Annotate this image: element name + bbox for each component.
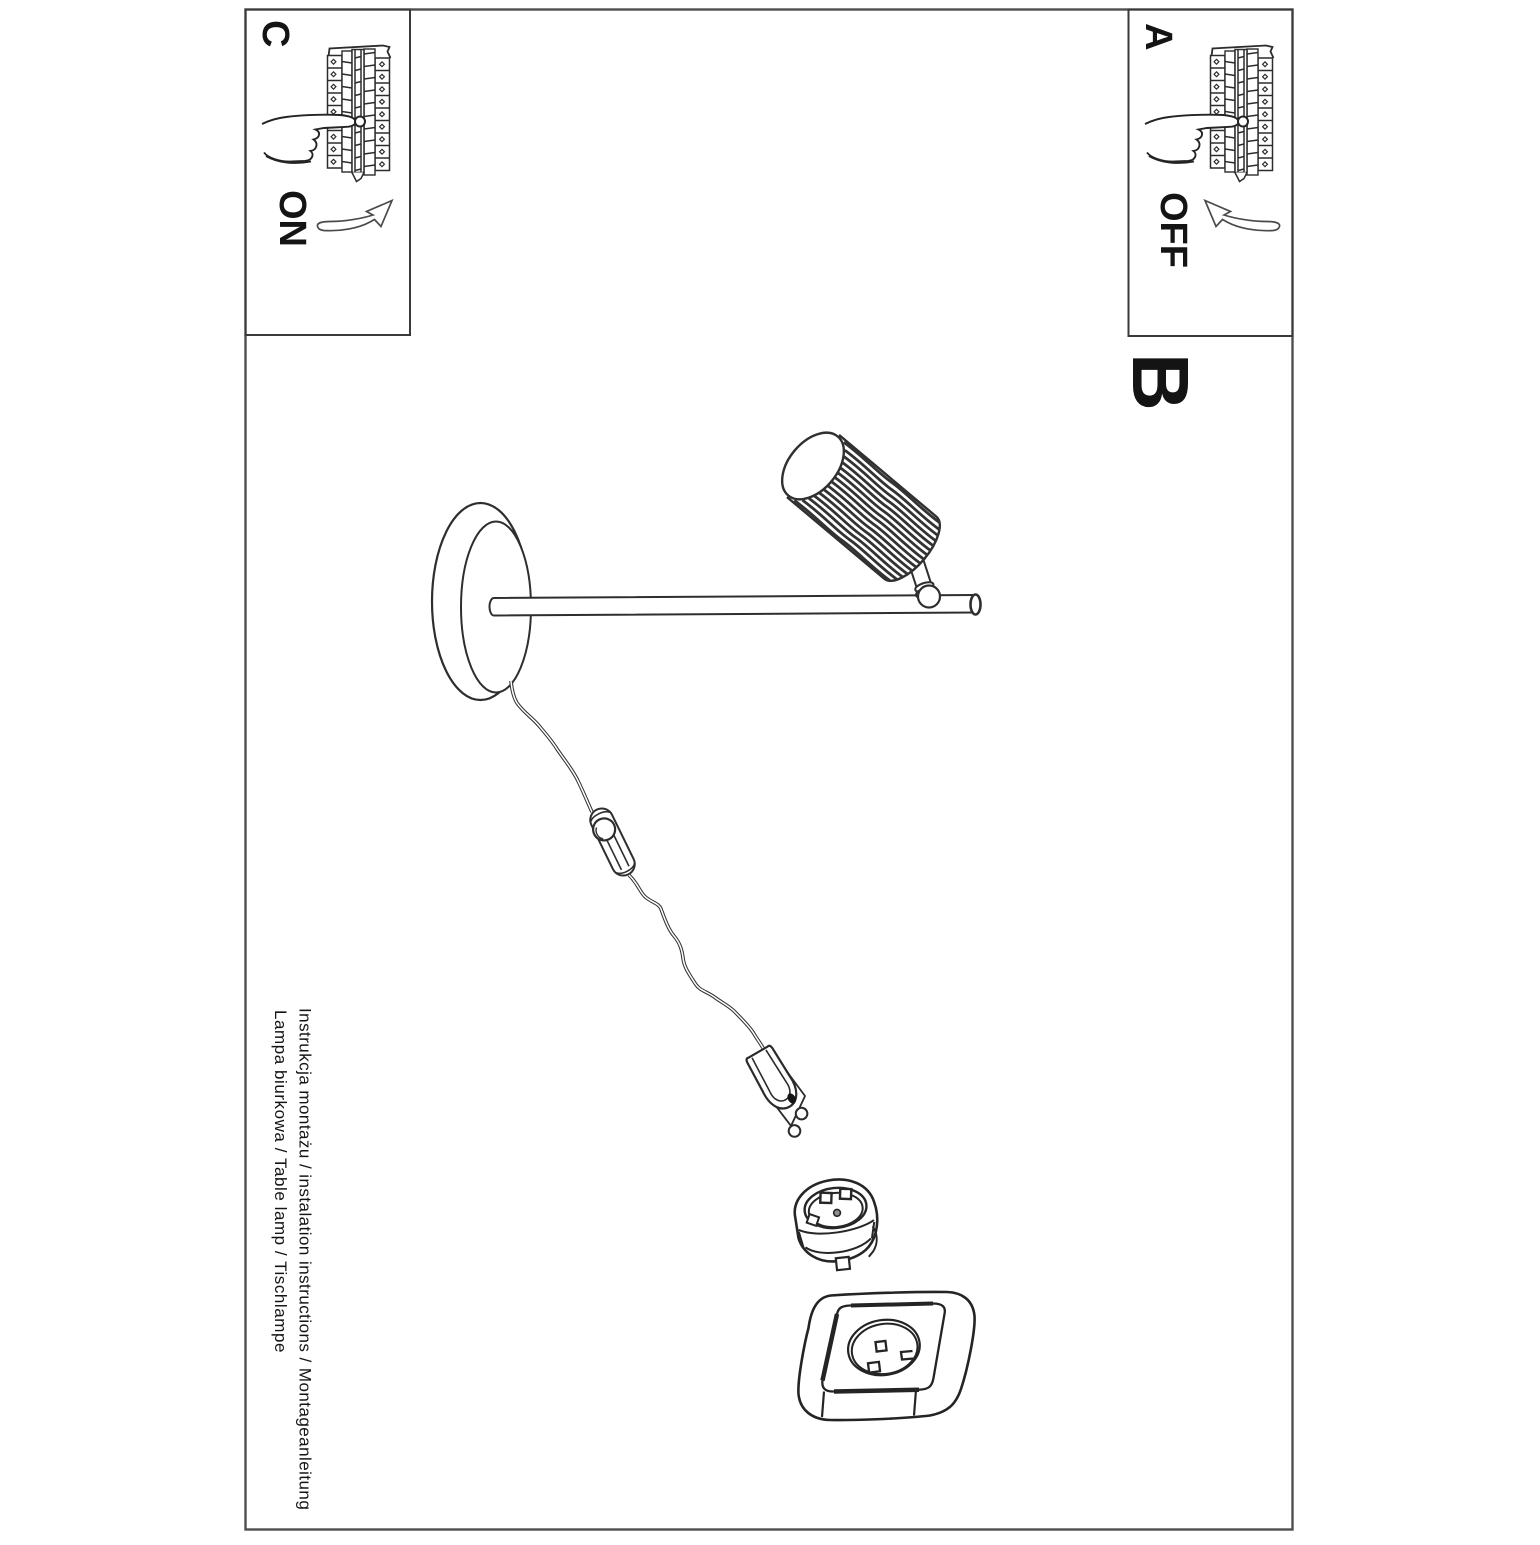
svg-text:B: B <box>1116 353 1205 411</box>
svg-text:OFF: OFF <box>1152 192 1194 268</box>
svg-text:A: A <box>1137 23 1179 50</box>
svg-text:C: C <box>254 20 296 47</box>
svg-text:Lampa biurkowa / Table lamp /: Lampa biurkowa / Table lamp / Tischlampe <box>271 1010 290 1353</box>
svg-text:ON: ON <box>271 190 313 247</box>
svg-text:Instrukcja montażu / instalati: Instrukcja montażu / instalation instruc… <box>296 1008 315 1510</box>
